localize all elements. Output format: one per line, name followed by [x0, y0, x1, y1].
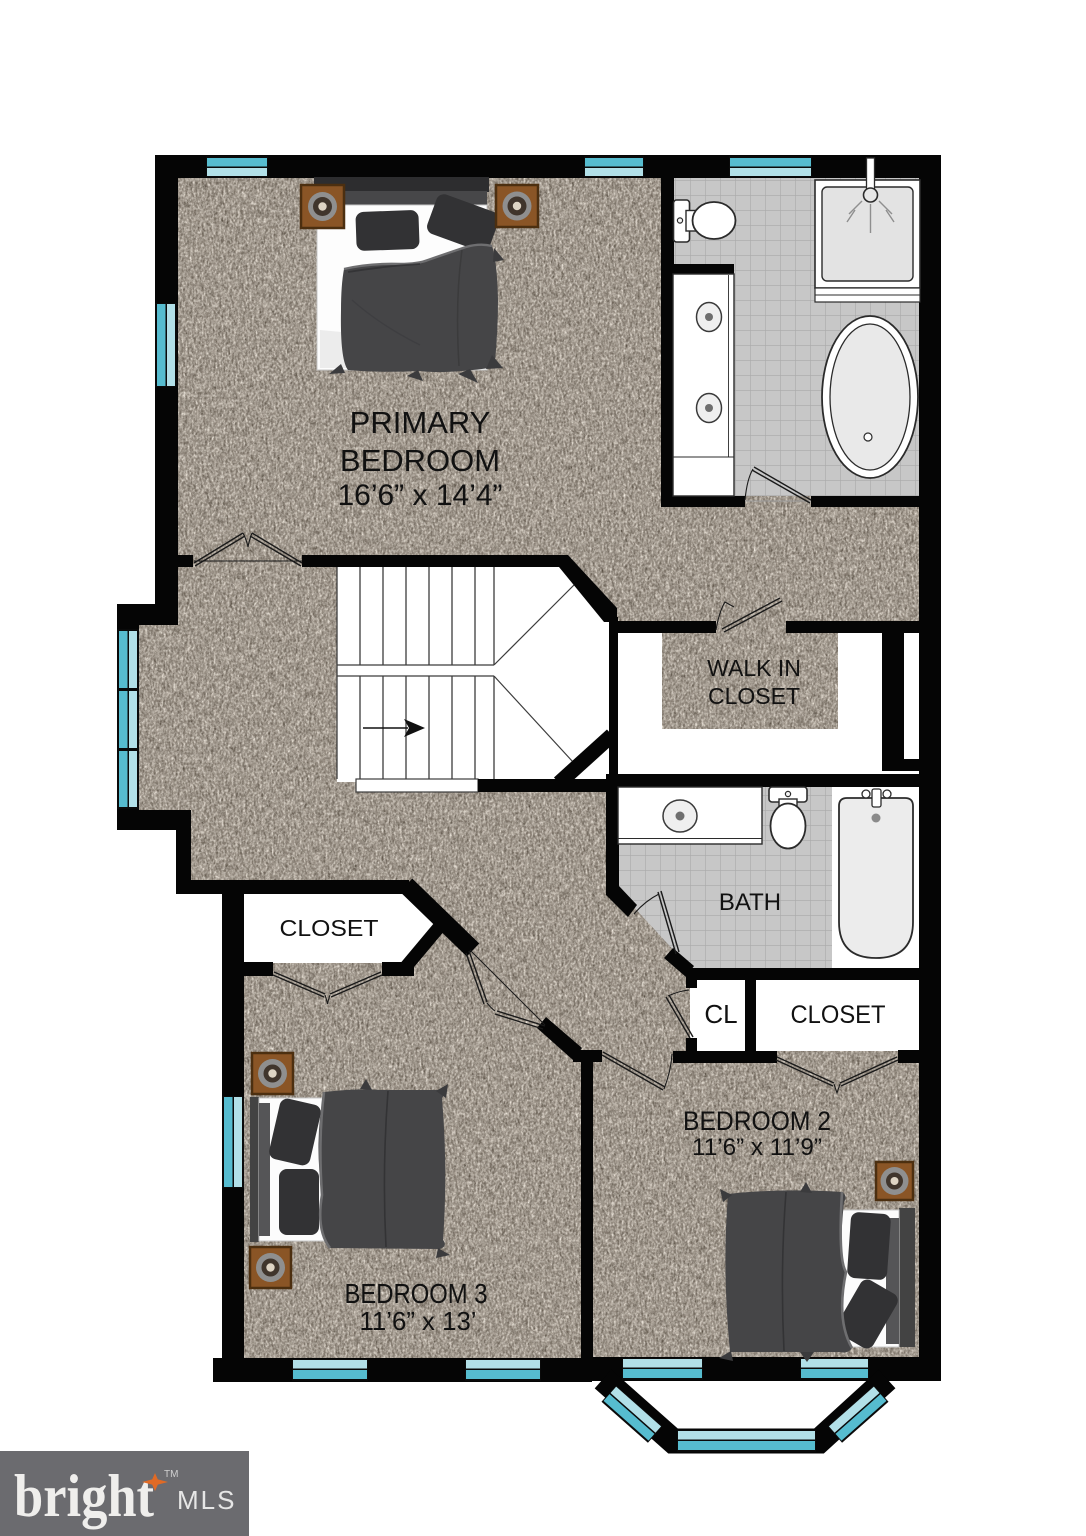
svg-text:11’6” x 13’: 11’6” x 13’: [360, 1306, 477, 1336]
svg-text:BEDROOM: BEDROOM: [340, 443, 500, 478]
svg-text:BATH: BATH: [719, 889, 781, 916]
svg-text:BEDROOM 2: BEDROOM 2: [683, 1106, 831, 1136]
svg-text:bright: bright: [14, 1463, 154, 1529]
svg-text:MLS: MLS: [177, 1485, 236, 1515]
svg-text:CL: CL: [704, 999, 737, 1029]
svg-text:CLOSET: CLOSET: [791, 1001, 886, 1029]
svg-text:WALK IN: WALK IN: [707, 655, 801, 681]
svg-text:CLOSET: CLOSET: [280, 915, 379, 941]
svg-text:11’6” x 11’9”: 11’6” x 11’9”: [692, 1134, 822, 1161]
svg-text:16’6” x 14’4”: 16’6” x 14’4”: [337, 479, 502, 512]
svg-text:TM: TM: [164, 1469, 178, 1480]
svg-text:PRIMARY: PRIMARY: [350, 405, 491, 440]
svg-text:BEDROOM 3: BEDROOM 3: [345, 1278, 488, 1309]
svg-text:CLOSET: CLOSET: [708, 683, 800, 709]
